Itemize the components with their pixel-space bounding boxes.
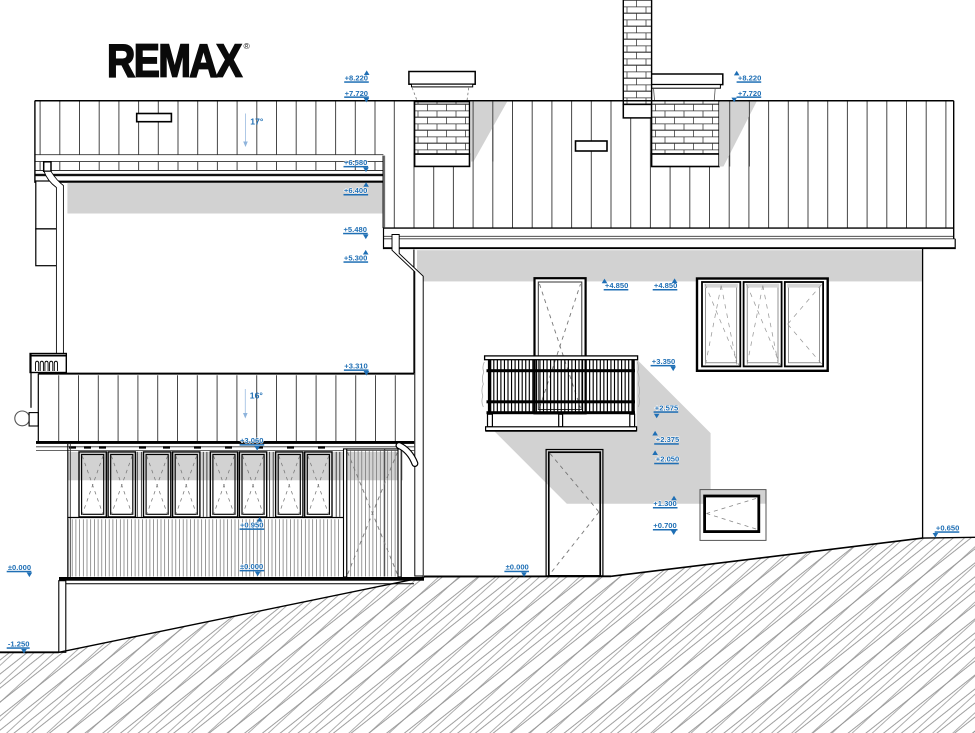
svg-text:+4.850: +4.850 <box>605 281 628 290</box>
svg-text:+0.650: +0.650 <box>936 523 959 532</box>
svg-text:17°: 17° <box>250 116 264 126</box>
svg-text:-1.250: -1.250 <box>8 639 30 648</box>
svg-text:±0.000: ±0.000 <box>506 563 529 572</box>
svg-text:+5.480: +5.480 <box>344 225 367 234</box>
svg-text:+3.350: +3.350 <box>652 357 675 366</box>
svg-text:+2.575: +2.575 <box>655 403 679 412</box>
svg-text:®: ® <box>244 41 251 51</box>
svg-text:+3.060: +3.060 <box>240 436 263 445</box>
svg-text:REMAX: REMAX <box>107 35 243 87</box>
svg-text:±0.000: ±0.000 <box>8 563 31 572</box>
svg-text:+3.310: +3.310 <box>344 362 367 371</box>
svg-text:±0.000: ±0.000 <box>240 562 263 571</box>
svg-text:+0.700: +0.700 <box>653 521 676 530</box>
svg-text:+0.950: +0.950 <box>240 520 263 529</box>
svg-text:+2.050: +2.050 <box>656 455 679 464</box>
svg-text:+5.300: +5.300 <box>344 253 367 262</box>
svg-text:+1.300: +1.300 <box>653 499 676 508</box>
svg-text:16°: 16° <box>250 390 264 400</box>
svg-text:+6.400: +6.400 <box>344 186 367 195</box>
svg-text:+6.580: +6.580 <box>344 158 367 167</box>
svg-text:+2.375: +2.375 <box>656 435 680 444</box>
